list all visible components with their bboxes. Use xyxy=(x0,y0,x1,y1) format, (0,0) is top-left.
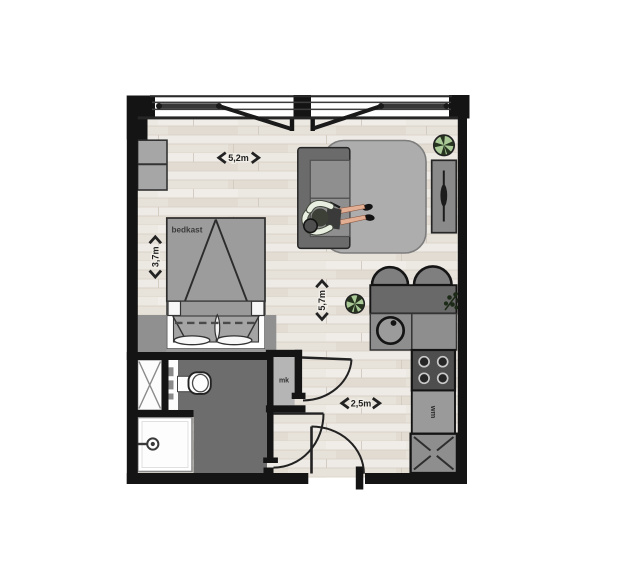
svg-text:2,5m: 2,5m xyxy=(351,399,372,409)
svg-text:5,2m: 5,2m xyxy=(228,153,249,163)
svg-text:bedkast: bedkast xyxy=(172,226,203,235)
svg-text:mk: mk xyxy=(279,378,289,385)
svg-text:5,7m: 5,7m xyxy=(317,290,327,311)
svg-text:wm: wm xyxy=(429,405,438,419)
svg-text:3,7m: 3,7m xyxy=(151,247,161,268)
